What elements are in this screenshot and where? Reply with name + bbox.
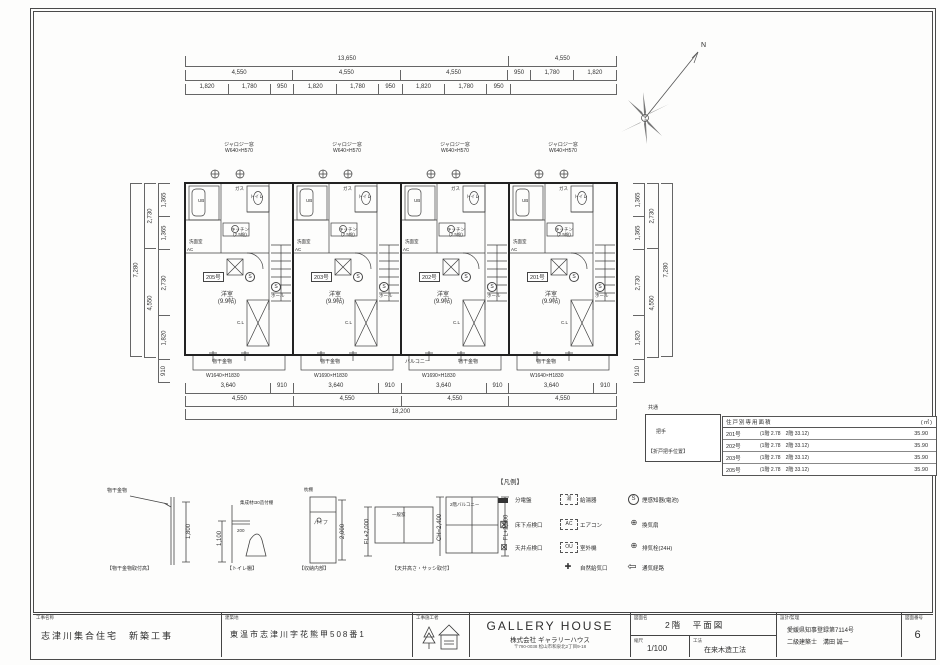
room-label: 洋室(9.9帖) — [529, 292, 573, 306]
bottom-window-label: W1690×H1830 — [422, 374, 456, 380]
architect-registration: 愛媛県知事登録第7114号 — [787, 625, 854, 634]
field-label: 縮尺 — [634, 638, 643, 644]
room-label: 洋室(9.9帖) — [313, 292, 357, 306]
wash-label: 洗面室 — [189, 239, 203, 244]
dim-bottom-bays: 4,550 4,550 4,550 4,550 — [185, 396, 617, 407]
ub-label: UB — [198, 198, 204, 203]
dim-top-sub: 1,820 1,780 950 1,820 1,780 950 1,820 1,… — [185, 84, 617, 95]
toilet-label: トイレ — [466, 194, 480, 199]
title-block: 工事名称 志津川集合住宅 新築工事 建築地 東温市志津川字花熊甲508番1 工事… — [33, 612, 933, 657]
unit-number: 202号 — [419, 272, 440, 282]
smoke-detector-icon: S — [353, 272, 363, 282]
detail4-dim3: FL+2,000 — [503, 515, 510, 541]
kitchen-label: キッチン(2.5帖) — [222, 227, 258, 237]
window-label: ジャロジー窓W640×H570 — [420, 141, 490, 154]
kitchen-label: キッチン(2.5帖) — [546, 227, 582, 237]
detail3-pipe-label: パイプ — [314, 520, 328, 525]
closet-label: C.L — [561, 320, 568, 325]
gas-label: ガス — [235, 186, 244, 191]
detail3-shelf-label: 枕棚 — [304, 487, 313, 492]
unit-number: 205号 — [203, 272, 224, 282]
field-label: 工法 — [693, 638, 702, 644]
hall-label: ホール — [379, 293, 393, 298]
window-label: ジャロジー窓W640×H570 — [312, 141, 382, 154]
area-table-unit: (㎡) — [921, 418, 933, 426]
ac-label: AC — [187, 247, 193, 252]
dim-top-bays: 4,550 4,550 4,550 950 1,780 1,820 — [185, 70, 617, 81]
detail1-dim: 1,800 — [186, 524, 193, 539]
detail3-caption: 【収納内部】 — [299, 567, 329, 573]
smoke-detector-legend-icon: S — [628, 494, 639, 505]
outdoor-unit-icon: OU — [560, 542, 578, 553]
hanger-label: 物干金物 — [458, 360, 478, 366]
field-label: 工事名称 — [36, 615, 54, 621]
unit-number: 203号 — [311, 272, 332, 282]
common-box-title: 共通 — [648, 406, 658, 412]
kitchen-label: キッチン(2.5帖) — [330, 227, 366, 237]
detail1-label: 物干金物 — [107, 489, 127, 495]
gas-label: ガス — [343, 186, 352, 191]
brand-name: GALLERY HOUSE — [470, 619, 630, 633]
smoke-detector-icon: S — [569, 272, 579, 282]
water-heater-icon: 湯 — [560, 494, 578, 505]
table-row: 202号(1階 2.78 2階 33.12)35.90 — [723, 440, 936, 452]
drawing-scale: 1/100 — [647, 644, 667, 653]
gas-label: ガス — [559, 186, 568, 191]
detail4-window1-label: 一般窓 — [392, 512, 406, 517]
common-box-caption: 【折戸把手位置】 — [648, 450, 688, 456]
dim-left-mid: 2,730 4,550 — [144, 183, 156, 358]
smoke-detector-icon: S — [245, 272, 255, 282]
closet-label: C.L — [345, 320, 352, 325]
sheet-number: 6 — [902, 629, 933, 641]
toilet-label: トイレ — [574, 194, 588, 199]
project-name: 志津川集合住宅 新築工事 — [41, 629, 173, 642]
detail4-window2-label: 2階バルコニー — [450, 502, 479, 507]
dim-bottom-overall: 18,200 — [185, 409, 617, 420]
detail2-dim2: 200 — [237, 528, 245, 533]
window-label: ジャロジー窓W640×H570 — [204, 141, 274, 154]
detail2-dim1: 1,100 — [217, 531, 224, 546]
closet-label: C.L — [453, 320, 460, 325]
table-row: 201号(1階 2.78 2階 33.12)35.90 — [723, 428, 936, 440]
dim-left-inner: 1,365 1,365 2,730 1,820 910 — [158, 183, 170, 383]
ac-label: AC — [295, 247, 301, 252]
gas-label: ガス — [451, 186, 460, 191]
brand-address: 〒790-0038 松山市和泉北2丁目9-18 — [470, 644, 630, 650]
hall-label: ホール — [271, 293, 285, 298]
field-label: 設計/監理 — [780, 615, 799, 621]
detail2-note: 集成材t30造付棚 — [240, 500, 273, 505]
smoke-detector-icon: S — [271, 282, 281, 292]
field-label: 図面番号 — [905, 615, 923, 621]
drawing-title: 2階 平面図 — [665, 619, 724, 631]
dim-top-overall: 13,650 4,550 — [185, 56, 617, 67]
dim-right-mid: 2,730 4,550 — [647, 183, 659, 358]
north-arrow — [621, 52, 698, 144]
closet-label: C.L — [237, 320, 244, 325]
dim-bottom-sub: 3,640 910 3,640 910 3,640 910 3,640 910 — [185, 383, 617, 394]
detail4-dim2: CH=2,400 — [437, 514, 444, 541]
window-label: ジャロジー窓W640×H570 — [528, 141, 598, 154]
ventilation-fan-icon: ⊕ — [626, 518, 642, 527]
dim-left-overall: 7,280 — [130, 183, 142, 357]
table-row: 203号(1階 2.78 2階 33.12)35.90 — [723, 452, 936, 464]
room-label: 洋室(9.9帖) — [205, 292, 249, 306]
ceiling-hatch-icon: ⊠ — [496, 542, 512, 553]
toilet-label: トイレ — [358, 194, 372, 199]
hanger-label: 物干金物 — [536, 360, 556, 366]
ub-label: UB — [522, 198, 528, 203]
architect-name: 二級建築士 溝田 誠一 — [787, 637, 849, 646]
room-label: 洋室(9.9帖) — [421, 292, 465, 306]
exhaust-24h-icon: ⊕ — [626, 541, 642, 550]
kitchen-label: キッチン(2.5帖) — [438, 227, 474, 237]
gallery-house-logo — [413, 613, 469, 657]
brand-company: 株式会社 ギャラリーハウス — [470, 634, 630, 644]
detail4-dim1: FL+2,000 — [364, 519, 371, 545]
detail1-caption: 【物干金物取付高】 — [107, 567, 152, 573]
unit-area-table: 住戸別専用面積 (㎡) 201号(1階 2.78 2階 33.12)35.90 … — [722, 416, 937, 476]
area-table-title: 住戸別専用面積 — [726, 418, 772, 426]
ub-label: UB — [414, 198, 420, 203]
airflow-path-icon: ⇦ — [624, 560, 640, 573]
dim-right-inner: 1,365 1,365 2,730 1,820 910 — [633, 183, 645, 383]
hall-label: ホール — [487, 293, 501, 298]
smoke-detector-icon: S — [461, 272, 471, 282]
hanger-label: 物干金物 — [320, 360, 340, 366]
distribution-board-icon — [498, 498, 508, 503]
bottom-window-label: W1640×H1830 — [530, 374, 564, 380]
field-label: 建築地 — [225, 615, 239, 621]
construction-method: 在来木造工法 — [704, 645, 746, 655]
smoke-detector-icon: S — [487, 282, 497, 292]
field-label: 図面名 — [634, 615, 648, 621]
bottom-window-label: W1690×H1830 — [314, 374, 348, 380]
ac-label: AC — [511, 247, 517, 252]
smoke-detector-icon: S — [379, 282, 389, 292]
dim-right-overall: 7,280 — [661, 183, 673, 357]
smoke-detector-icon: S — [595, 282, 605, 292]
wash-label: 洗面室 — [405, 239, 419, 244]
balcony-label: バルコニー — [405, 360, 430, 366]
bottom-window-label: W1640×H1830 — [206, 374, 240, 380]
ac-label: AC — [403, 247, 409, 252]
table-row: 205号(1階 2.78 2階 33.12)35.90 — [723, 464, 936, 475]
unit-number: 201号 — [527, 272, 548, 282]
handle-label: 把手 — [656, 430, 666, 436]
wash-label: 洗面室 — [513, 239, 527, 244]
detail4-caption: 【天井高さ・サッシ取付】 — [392, 567, 452, 573]
hanger-label: 物干金物 — [212, 360, 232, 366]
drawing-sheet: ジャロジー窓W640×H570 ジャロジー窓W640×H570 ジャロジー窓W6… — [0, 0, 940, 665]
natural-air-intake-icon: ✚ — [560, 562, 576, 571]
detail2-caption: 【トイレ棚】 — [227, 567, 257, 573]
ub-label: UB — [306, 198, 312, 203]
site-address: 東温市志津川字花熊甲508番1 — [230, 629, 366, 640]
legend-title: 【凡例】 — [497, 479, 523, 486]
toilet-label: トイレ — [250, 194, 264, 199]
hall-label: ホール — [595, 293, 609, 298]
north-label: N — [701, 42, 706, 50]
wash-label: 洗面室 — [297, 239, 311, 244]
air-conditioner-icon: AC — [560, 519, 578, 530]
detail3-dim: 2,000 — [340, 524, 347, 539]
